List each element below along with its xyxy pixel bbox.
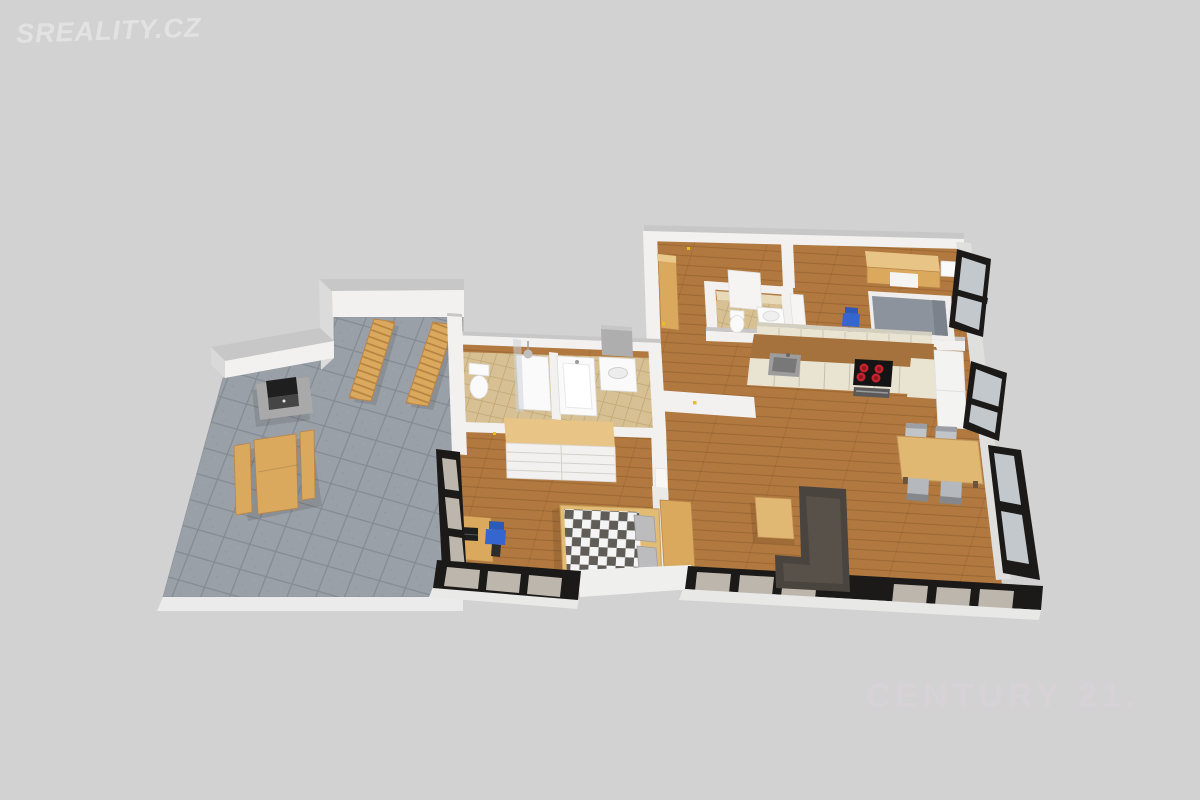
office-chair2 (842, 313, 860, 327)
toilet-bowl (470, 376, 488, 399)
real-estate-floorplan-image: SREALITY.CZ (0, 0, 1200, 800)
bathtub-inner (563, 363, 592, 409)
wc-toilet-bowl (730, 316, 744, 333)
floorplan-canvas: SREALITY.CZ (0, 0, 1200, 800)
grill (252, 377, 313, 427)
vanity-basin (609, 368, 628, 379)
office-chair1 (485, 529, 506, 545)
fridge-column (934, 350, 967, 429)
sreality-watermark: SREALITY.CZ (15, 12, 202, 48)
dining-table (897, 436, 983, 484)
wc-door (728, 270, 762, 310)
bed1-pillow (634, 515, 656, 542)
bedroom2-door (790, 294, 806, 328)
bedroom2-left-wall (781, 241, 795, 288)
picnic-table (234, 430, 322, 521)
terrace-edge-fascia (157, 597, 463, 611)
sideboard (660, 500, 695, 569)
shower-head (524, 350, 533, 359)
mirror-cabinet (601, 329, 633, 357)
hallway (658, 254, 679, 330)
wardrobe1-top (504, 418, 615, 447)
house (429, 225, 1043, 620)
century21-watermark: CENTURY 21. (866, 677, 1140, 715)
coffee-table (755, 497, 794, 539)
window-panel-right-middle (963, 361, 1007, 441)
terrace (157, 279, 464, 611)
floor-plan (157, 225, 1043, 620)
hall-cabinet (658, 254, 679, 330)
bed1-checkered-duvet (564, 509, 642, 578)
toilet-tank (469, 363, 489, 376)
